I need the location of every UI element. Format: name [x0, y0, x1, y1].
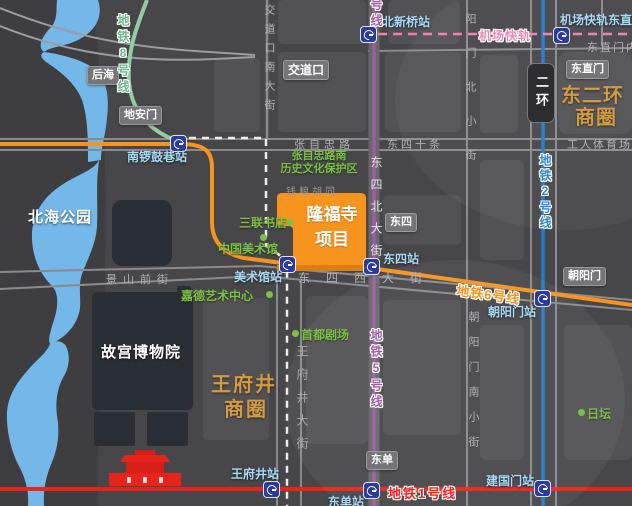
station-dongsi: 东四站 — [383, 250, 419, 267]
street-workers-stadium: 工人体育场 — [567, 136, 632, 152]
street-dongzhimen-inner: 东直门内大街 — [587, 39, 632, 55]
metro-logo-icon-jianguomen — [535, 481, 550, 496]
longfusi-location-map: 隆福寺 项目 王府井 商圈 东二环 商圈 北海公园 故宫博物院 张自忠路南 历史… — [0, 0, 632, 506]
poi-guardian-art-center: 嘉德艺术中心 — [181, 287, 253, 304]
place-box-dongsi: 东四 — [385, 213, 417, 232]
place-box-chaoyangmen: 朝阳门 — [563, 267, 606, 286]
station-dongdan: 东单站 — [328, 493, 364, 506]
poi-dot-icon — [266, 291, 273, 298]
station-beixinqiao: 北新桥站 — [382, 13, 430, 30]
palace-museum-buildings — [92, 200, 193, 446]
east2ring-district-label2: 商圈 — [575, 101, 617, 130]
poi-dot-icon — [578, 409, 585, 416]
project-label: 隆福寺 项目 — [294, 202, 370, 252]
metro-logo-icon-airport-dongzhimen — [554, 28, 569, 43]
second-ring-badge: 二环 — [527, 63, 555, 123]
poi-dot-icon — [260, 234, 267, 241]
airport-express-label: 机场快轨 — [479, 27, 531, 44]
metro-line-5-label: 地铁5号线 — [368, 329, 385, 411]
street-dongsi-west: 东四西大街 — [298, 269, 438, 286]
wangfujing-district-label2: 商圈 — [224, 393, 268, 422]
place-box-jiaodaokou: 交道口 — [283, 60, 329, 80]
metro-line-8-label: 地铁8号线 — [115, 14, 132, 96]
street-chaoyangmen-south: 朝阳门南小街 — [465, 311, 481, 461]
place-box-dongdan: 东单 — [366, 451, 398, 470]
poi-ritan: 日坛 — [587, 405, 611, 422]
metro-line-1-label: 地铁1号线 — [388, 483, 457, 502]
metro-logo-icon-chaoyangmen — [535, 291, 550, 306]
metro-line-2-label: 地铁2号线 — [537, 154, 554, 231]
street-qianliang-hutong: 钱粮胡同 — [286, 183, 338, 198]
street-zhangzizhong: 张自忠路 — [294, 136, 354, 152]
heritage-zone-label: 张自忠路南 历史文化保护区 — [262, 150, 376, 176]
beihai-park-label: 北海公园 — [28, 206, 92, 227]
station-meishuguan: 美术馆站 — [234, 268, 282, 285]
street-wangfujing: 王府井大街 — [294, 345, 311, 460]
tiananmen-gate-graphic — [109, 450, 181, 486]
street-dongsi-north: 东四北大街 — [368, 156, 385, 266]
poi-national-art-museum: 中国美术馆 — [218, 240, 278, 257]
street-jingshan-front: 景山前街 — [106, 271, 174, 287]
metro-line-5-label-top: 地铁5号线 — [368, 0, 385, 30]
place-box-dongzhimen: 东直门 — [566, 60, 609, 79]
street-chaoyangmen-north: 朝阳门北小街 — [462, 0, 478, 183]
street-dongsishitiao: 东四十条 — [387, 136, 443, 152]
station-jianguomen: 建国门站 — [486, 472, 534, 489]
metro-logo-icon-dongdan — [364, 483, 379, 498]
palace-museum-label: 故宫博物院 — [101, 341, 181, 362]
poi-dot-icon — [287, 219, 294, 226]
poi-dot-icon — [292, 330, 299, 337]
metro-logo-icon-meishuguan — [280, 257, 295, 272]
station-airport-dongzhimen: 机场快轨东直门站 — [560, 11, 632, 28]
street-jiaodaokou-south: 交道口南大街 — [261, 4, 277, 118]
metro-logo-icon-wangfujing — [264, 482, 279, 497]
poi-sanlian-bookstore: 三联书店 — [239, 214, 287, 231]
place-box-dianmen: 地安门 — [119, 106, 162, 125]
station-nanluoguxiang: 南锣鼓巷站 — [127, 148, 187, 165]
poi-capital-theatre: 首都剧场 — [301, 326, 349, 343]
station-wangfujing: 王府井站 — [231, 465, 279, 482]
